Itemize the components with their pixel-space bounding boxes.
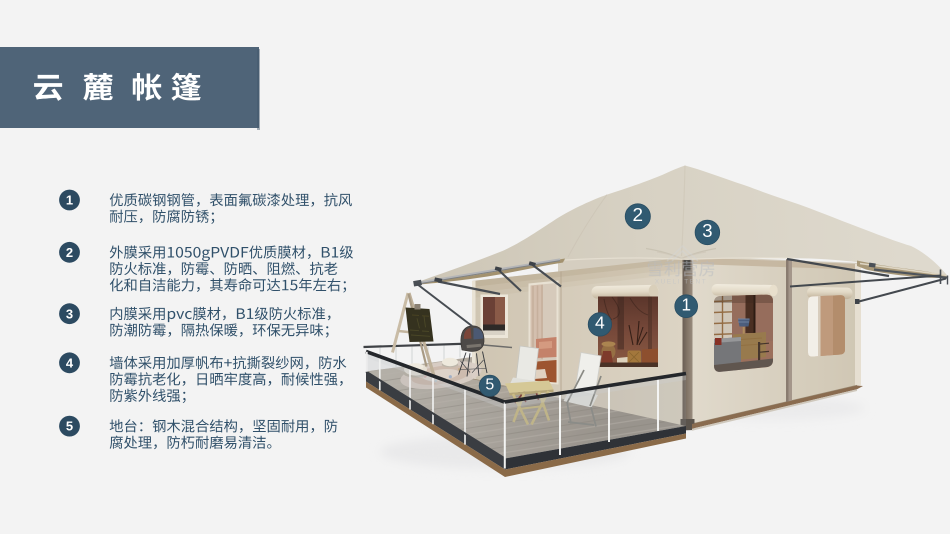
svg-text:1: 1 xyxy=(681,295,691,314)
svg-text:2: 2 xyxy=(633,205,644,226)
svg-text:XUELI TENT: XUELI TENT xyxy=(655,279,707,286)
svg-text:2: 2 xyxy=(66,245,73,260)
svg-text:4: 4 xyxy=(66,355,74,370)
svg-text:5: 5 xyxy=(485,377,494,394)
svg-text:5: 5 xyxy=(66,419,73,434)
svg-text:3: 3 xyxy=(66,306,73,321)
svg-text:3: 3 xyxy=(702,220,712,241)
svg-text:1: 1 xyxy=(66,193,73,208)
svg-text:4: 4 xyxy=(595,313,605,333)
